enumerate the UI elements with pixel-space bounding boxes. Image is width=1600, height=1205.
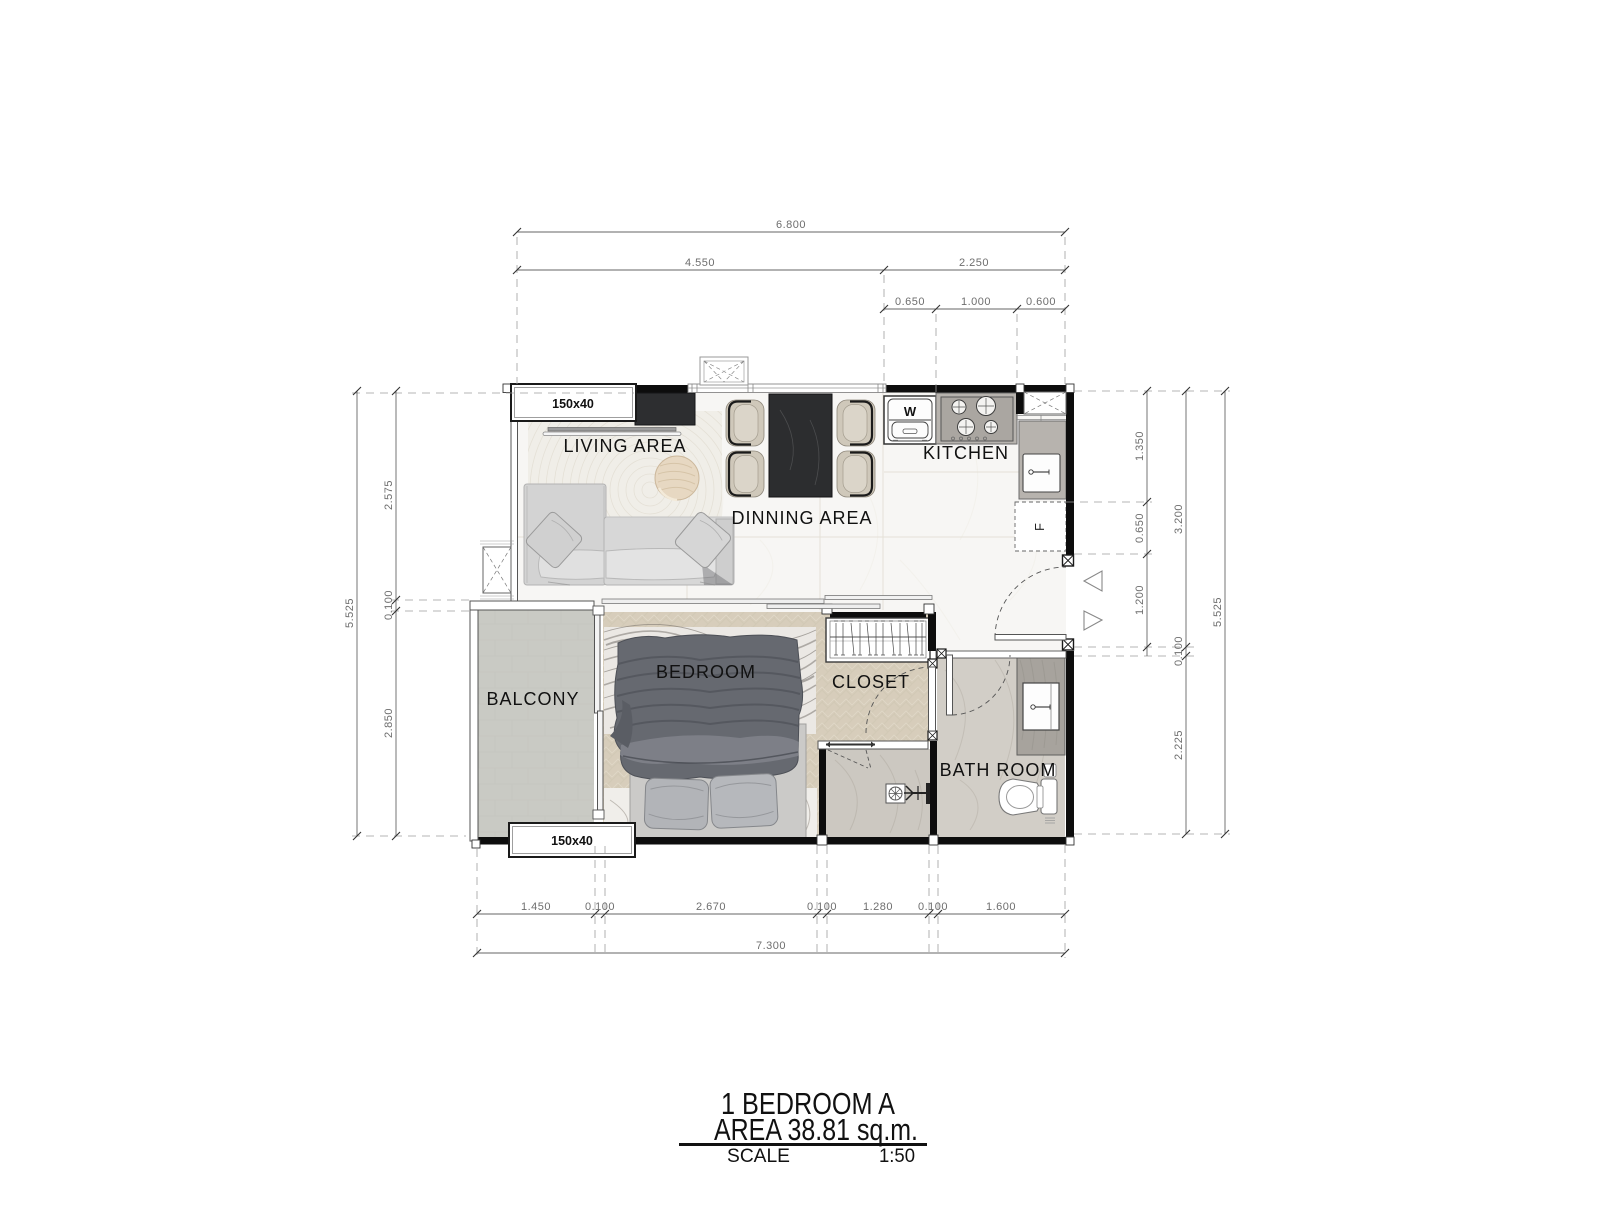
svg-text:4.550: 4.550 xyxy=(685,257,715,269)
svg-text:5.525: 5.525 xyxy=(1212,597,1224,627)
svg-text:BEDROOM: BEDROOM xyxy=(656,662,756,682)
svg-text:AREA 38.81 sq.m.: AREA 38.81 sq.m. xyxy=(714,1112,918,1147)
svg-text:1.280: 1.280 xyxy=(863,901,893,913)
svg-text:1:50: 1:50 xyxy=(879,1146,915,1167)
svg-text:2.575: 2.575 xyxy=(383,480,395,510)
svg-text:0.100: 0.100 xyxy=(383,590,395,620)
svg-text:7.300: 7.300 xyxy=(756,940,786,952)
svg-text:0.100: 0.100 xyxy=(918,901,948,913)
svg-text:150x40: 150x40 xyxy=(552,397,594,411)
svg-text:2.250: 2.250 xyxy=(959,257,989,269)
svg-text:2.850: 2.850 xyxy=(383,708,395,738)
svg-text:SCALE: SCALE xyxy=(727,1146,790,1167)
svg-text:1.200: 1.200 xyxy=(1134,585,1146,615)
svg-text:0.650: 0.650 xyxy=(1134,513,1146,543)
svg-text:0.100: 0.100 xyxy=(585,901,615,913)
svg-text:2.225: 2.225 xyxy=(1173,730,1185,760)
svg-text:BATH ROOM: BATH ROOM xyxy=(940,760,1057,780)
svg-text:DINNING AREA: DINNING AREA xyxy=(731,508,872,528)
svg-text:3.200: 3.200 xyxy=(1173,504,1185,534)
svg-text:1.450: 1.450 xyxy=(521,901,551,913)
svg-text:W: W xyxy=(904,404,917,419)
svg-text:F: F xyxy=(1032,523,1047,531)
svg-text:0.100: 0.100 xyxy=(1173,636,1185,666)
svg-text:6.800: 6.800 xyxy=(776,219,806,231)
svg-text:1.350: 1.350 xyxy=(1134,431,1146,461)
svg-text:2.670: 2.670 xyxy=(696,901,726,913)
svg-text:0.100: 0.100 xyxy=(807,901,837,913)
svg-text:0.650: 0.650 xyxy=(895,296,925,308)
svg-text:1.000: 1.000 xyxy=(961,296,991,308)
svg-text:BALCONY: BALCONY xyxy=(486,689,579,709)
svg-text:150x40: 150x40 xyxy=(551,834,593,848)
svg-text:LIVING AREA: LIVING AREA xyxy=(563,436,686,456)
svg-text:CLOSET: CLOSET xyxy=(832,672,910,692)
svg-text:KITCHEN: KITCHEN xyxy=(923,443,1009,463)
svg-text:0.600: 0.600 xyxy=(1026,296,1056,308)
svg-text:1.600: 1.600 xyxy=(986,901,1016,913)
svg-text:5.525: 5.525 xyxy=(344,598,356,628)
